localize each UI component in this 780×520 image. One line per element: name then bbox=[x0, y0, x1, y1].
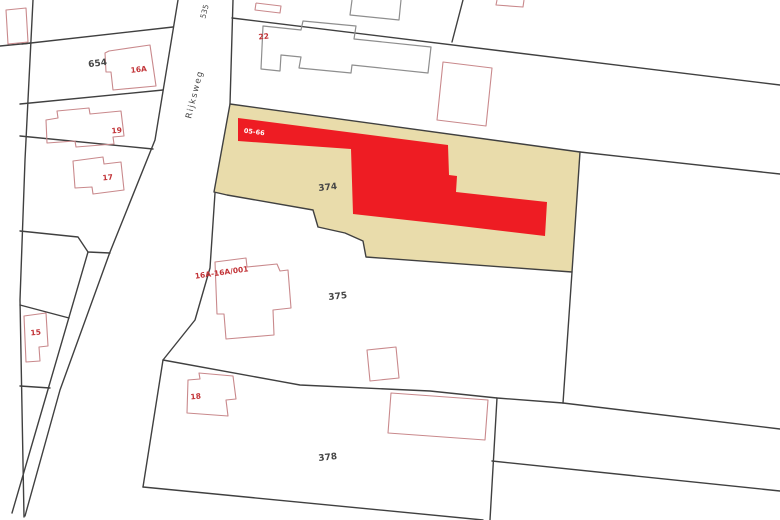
parcel-378-right-line bbox=[490, 398, 497, 520]
bottomright-strip-upper-line bbox=[563, 403, 780, 429]
parcel-654-top-line bbox=[22, 27, 173, 44]
building-outline-topright-fragment bbox=[496, 0, 524, 7]
building-outline-15 bbox=[24, 313, 48, 362]
house-label-15: 15 bbox=[30, 327, 41, 337]
road-name-label: Rijksweg bbox=[184, 69, 206, 120]
road-right-edge-bottom-line bbox=[143, 193, 215, 487]
building-outline-22-fragment bbox=[255, 3, 281, 13]
house-label-18: 18 bbox=[190, 391, 201, 401]
house-label-19: 19 bbox=[111, 125, 122, 135]
parcel-654-bottom-line bbox=[20, 90, 163, 104]
cadastral-map-canvas: 535 Rijksweg 654 374 375 378 16A 22 19 1… bbox=[0, 0, 780, 520]
parcel-label-375: 375 bbox=[328, 291, 348, 303]
parcel-label-378: 378 bbox=[318, 452, 338, 464]
building-outline-topleft bbox=[6, 8, 28, 44]
house-label-16a: 16A bbox=[130, 64, 147, 75]
parcel-label-374: 374 bbox=[318, 182, 338, 194]
parcel-15-bottom-line bbox=[20, 386, 50, 388]
verge-diagonal-line bbox=[12, 252, 88, 513]
parcel-label-654: 654 bbox=[88, 58, 108, 71]
building-outline-22-house bbox=[261, 21, 431, 73]
house-label-22: 22 bbox=[258, 31, 269, 41]
road-right-edge-top-line bbox=[230, 0, 233, 104]
building-outline-378-barn bbox=[388, 393, 488, 440]
parcel-375-right-line bbox=[563, 272, 572, 403]
cadastral-map: 535 Rijksweg 654 374 375 378 16A 22 19 1… bbox=[0, 0, 780, 520]
parcel-19-17-boundary-line bbox=[20, 136, 153, 149]
building-outline-17 bbox=[73, 157, 124, 194]
building-outline-top-fragment bbox=[350, 0, 401, 20]
left-boundary-line bbox=[20, 0, 33, 517]
house-label-16a001: 16A-16A/001 bbox=[194, 264, 249, 280]
building-outline-right-white bbox=[437, 62, 492, 126]
topright-boundary-line bbox=[232, 18, 780, 85]
house-label-17: 17 bbox=[102, 172, 113, 182]
parcel-17-15-boundary-line bbox=[20, 231, 110, 253]
parcel-375-378-boundary-line bbox=[163, 360, 563, 403]
building-outline-375-shed bbox=[367, 347, 399, 381]
bottomright-strip-lower-line bbox=[492, 461, 780, 491]
parcel-378-bottom-line bbox=[143, 487, 483, 520]
parcel-374-top-extension-line bbox=[580, 152, 780, 174]
road-number-label: 535 bbox=[198, 3, 210, 19]
parcel-22-right-line bbox=[452, 0, 463, 42]
